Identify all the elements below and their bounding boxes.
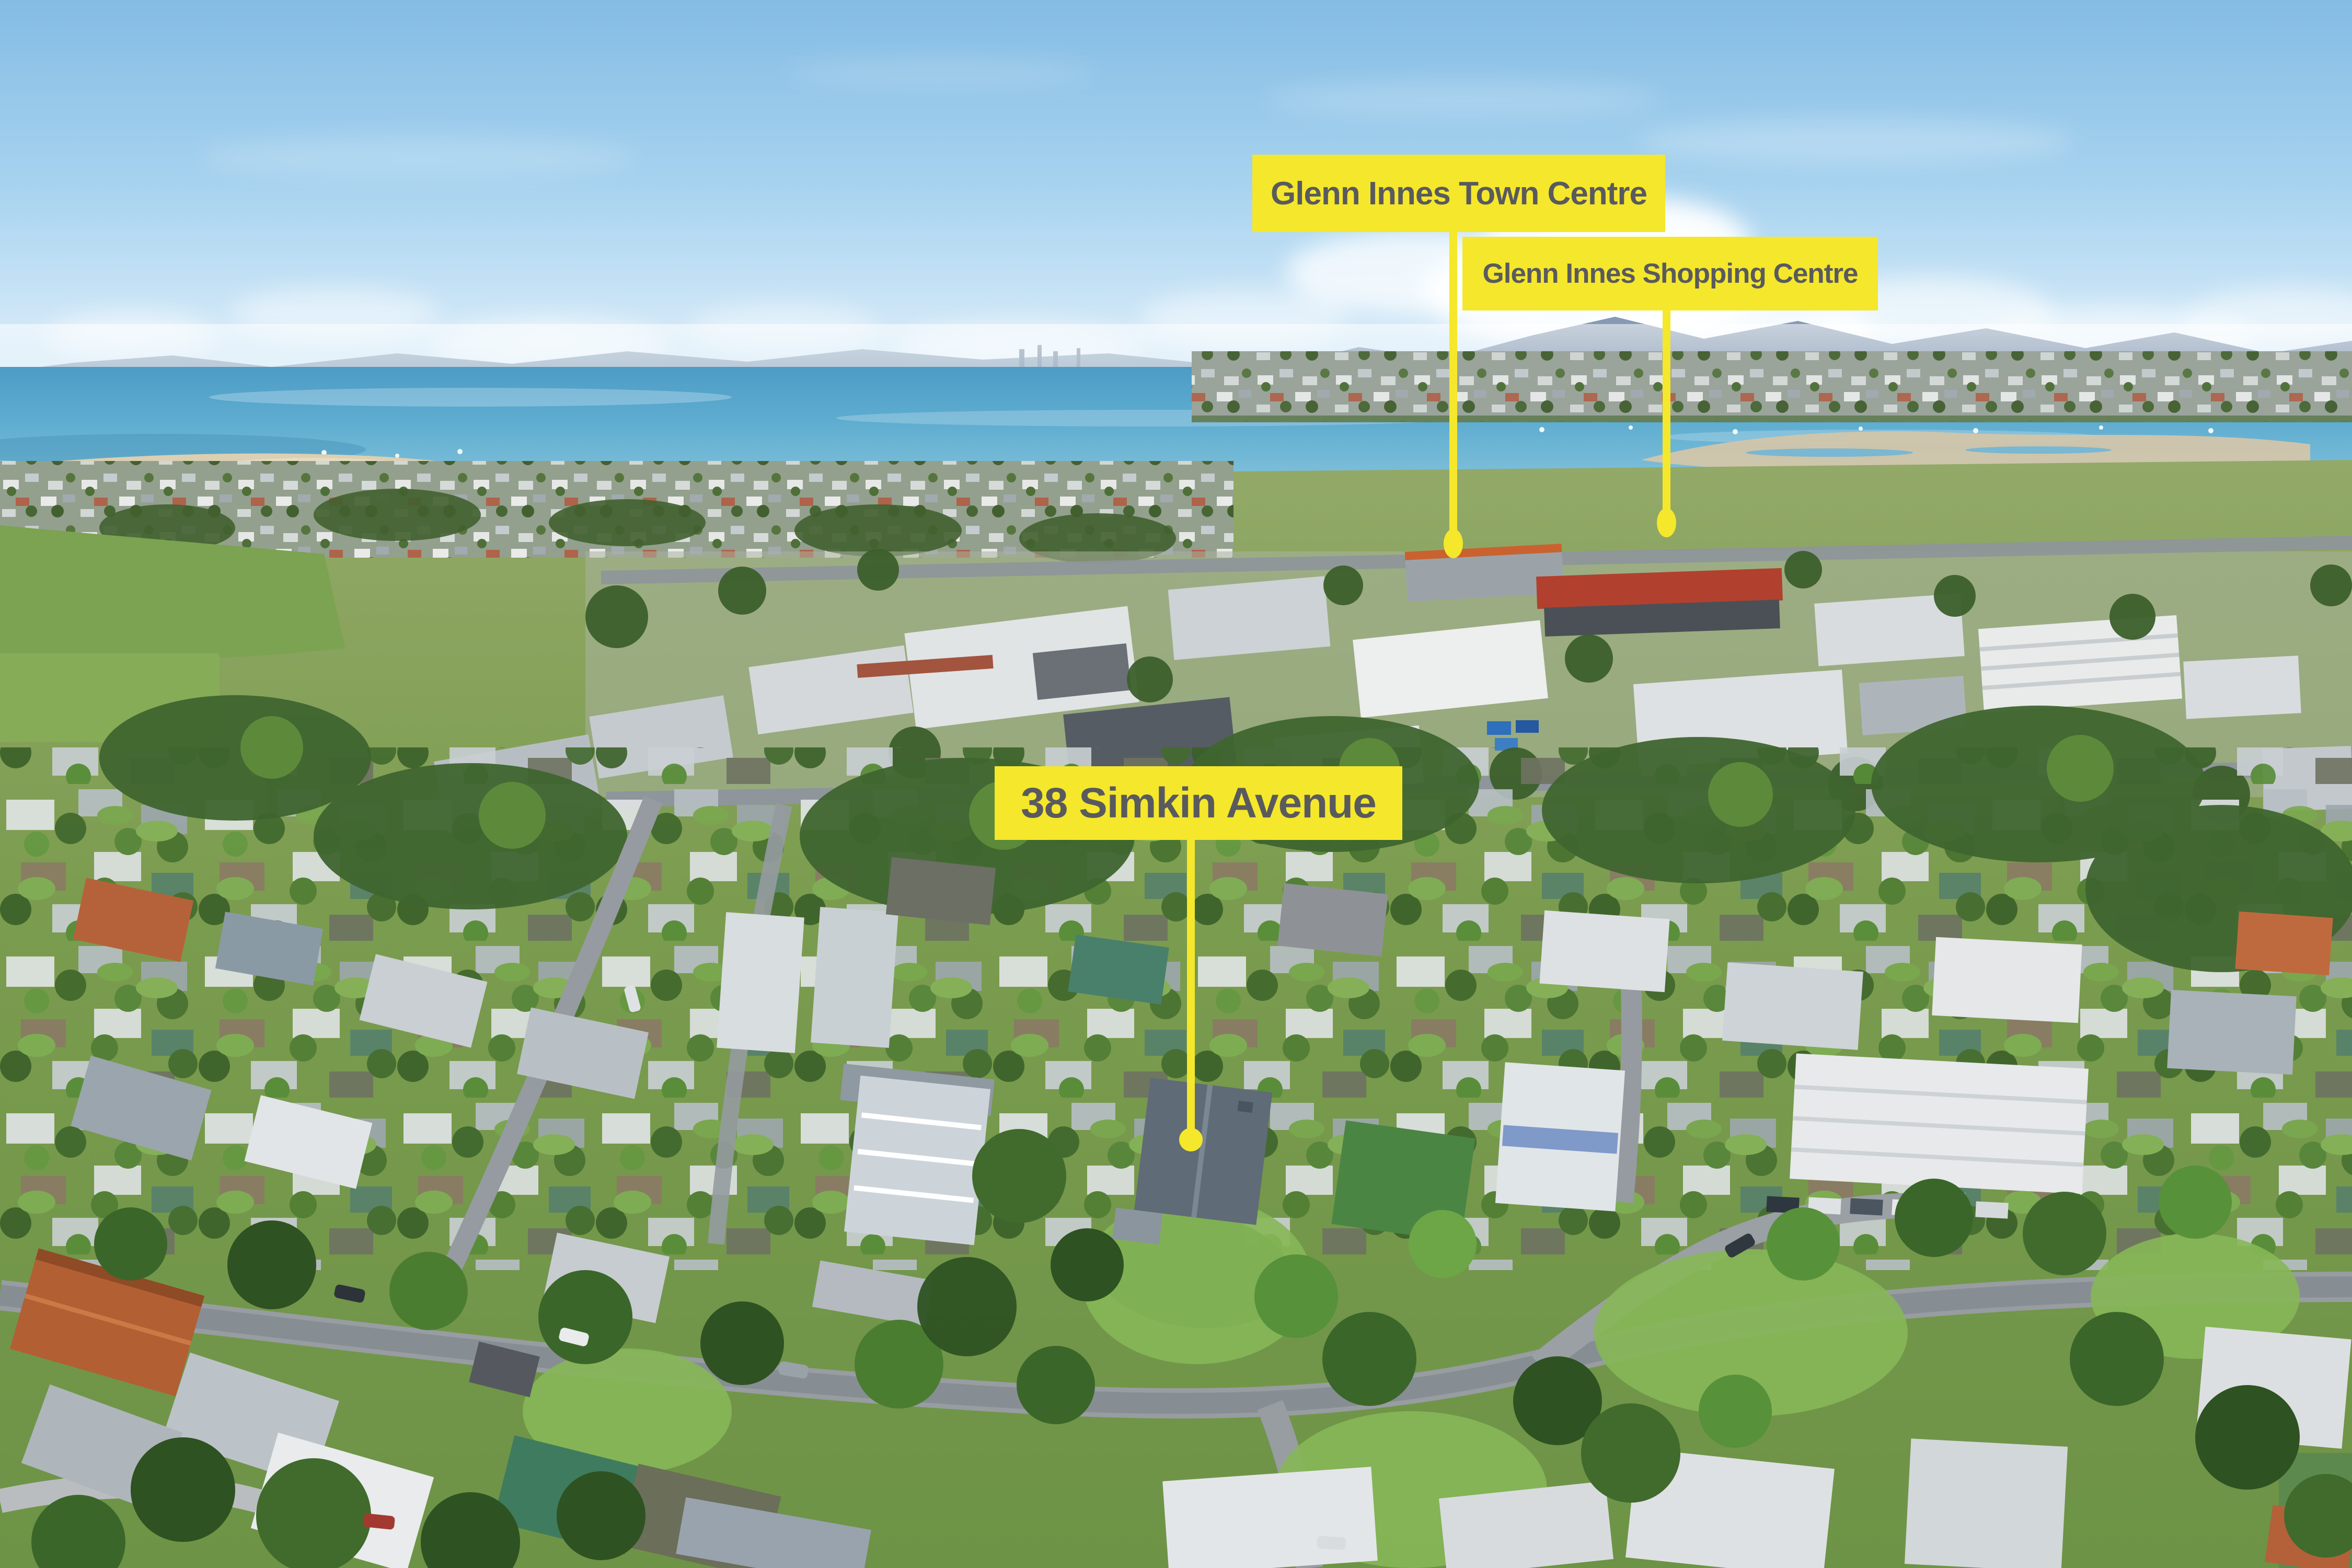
annotation-text: 38 Simkin Avenue xyxy=(1021,779,1376,828)
location-marker-dot-town-centre xyxy=(1444,529,1463,558)
leader-line-town-centre xyxy=(1449,232,1457,532)
annotation-label-property-address: 38 Simkin Avenue xyxy=(995,766,1402,840)
aerial-listing-photo: Glenn Innes Town Centre Glenn Innes Shop… xyxy=(0,0,2352,1568)
annotation-text: Glenn Innes Town Centre xyxy=(1271,175,1647,212)
annotation-label-shopping-centre: Glenn Innes Shopping Centre xyxy=(1462,237,1878,310)
annotation-label-town-centre: Glenn Innes Town Centre xyxy=(1252,155,1665,232)
leader-line-property xyxy=(1187,839,1195,1131)
location-marker-dot-property xyxy=(1179,1128,1203,1151)
annotation-text: Glenn Innes Shopping Centre xyxy=(1483,258,1858,290)
leader-line-shopping-centre xyxy=(1663,310,1670,511)
location-marker-dot-shopping-centre xyxy=(1657,508,1676,537)
